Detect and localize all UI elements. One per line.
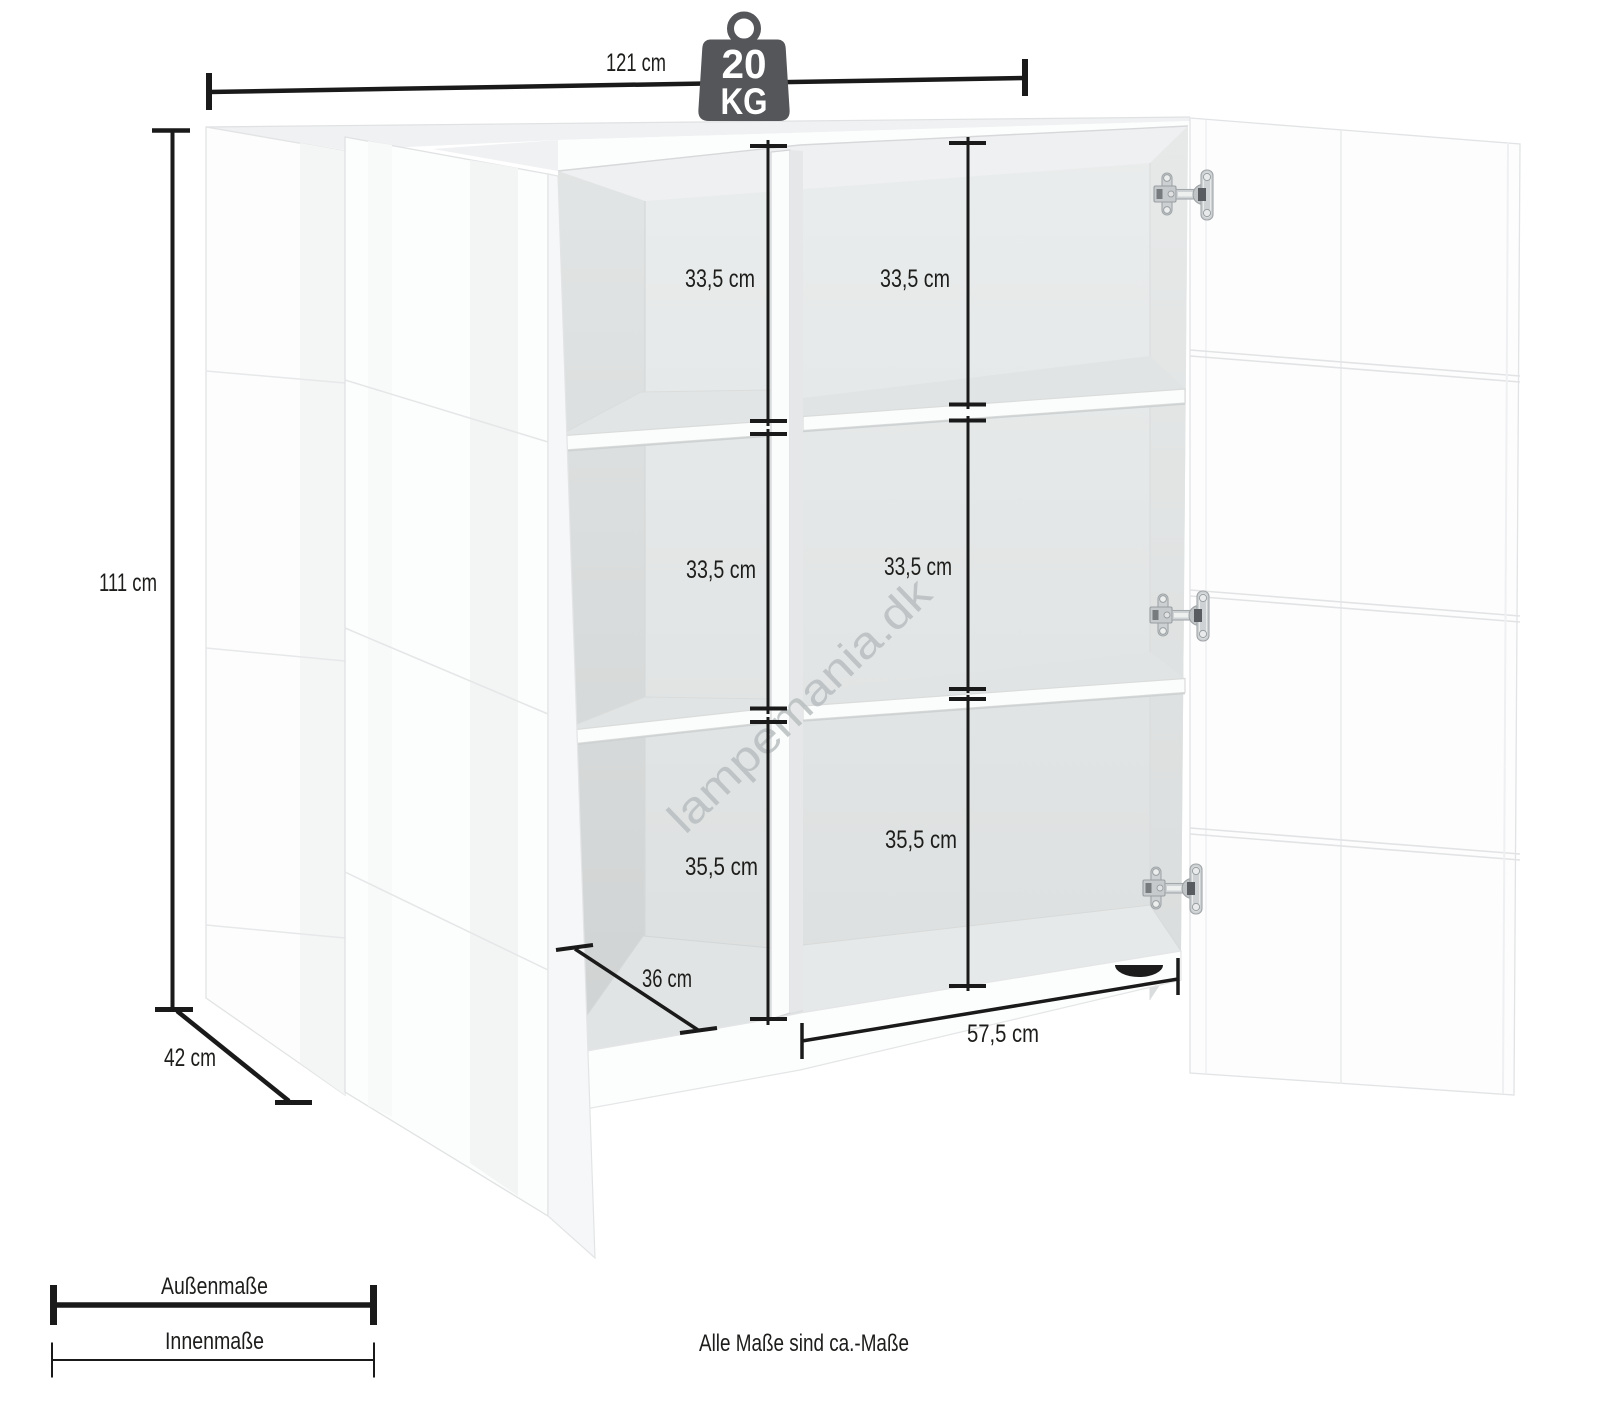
svg-text:Alle Maße sind ca.-Maße: Alle Maße sind ca.-Maße	[699, 1330, 909, 1357]
svg-text:42 cm: 42 cm	[164, 1044, 216, 1072]
svg-text:121 cm: 121 cm	[606, 49, 666, 77]
svg-text:36 cm: 36 cm	[642, 965, 692, 993]
svg-text:111 cm: 111 cm	[99, 569, 157, 597]
svg-text:35,5 cm: 35,5 cm	[685, 853, 758, 881]
svg-text:33,5 cm: 33,5 cm	[685, 265, 755, 293]
svg-text:35,5 cm: 35,5 cm	[885, 826, 957, 854]
svg-text:33,5 cm: 33,5 cm	[880, 265, 950, 293]
svg-text:33,5 cm: 33,5 cm	[686, 556, 756, 584]
svg-text:Innenmaße: Innenmaße	[165, 1328, 264, 1355]
svg-text:33,5 cm: 33,5 cm	[884, 553, 952, 581]
svg-text:KG: KG	[721, 81, 768, 122]
svg-text:Außenmaße: Außenmaße	[161, 1273, 268, 1300]
svg-text:57,5 cm: 57,5 cm	[967, 1020, 1039, 1048]
